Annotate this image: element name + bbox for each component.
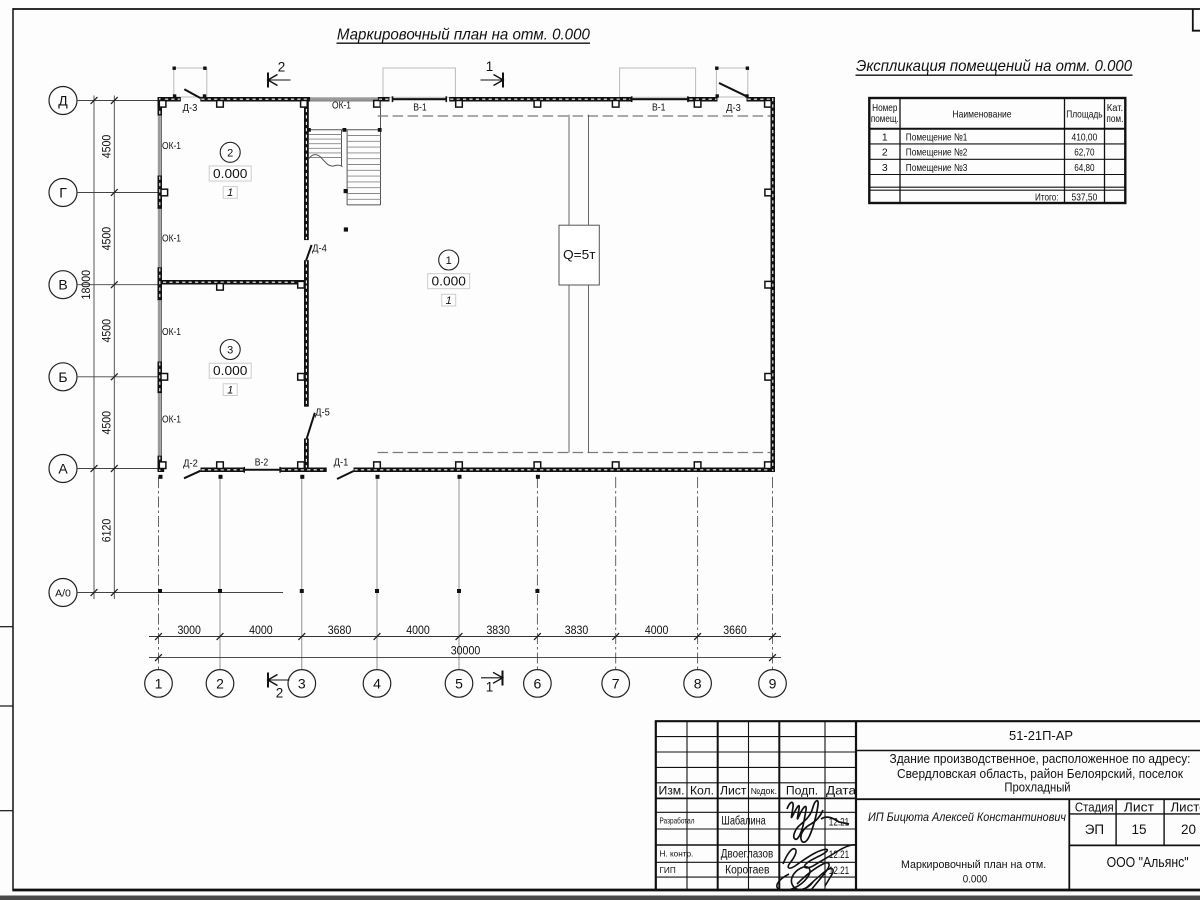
svg-text:Б: Б	[58, 369, 67, 385]
svg-text:2: 2	[216, 675, 224, 691]
svg-text:4000: 4000	[249, 623, 273, 637]
svg-text:Шабалина: Шабалина	[721, 816, 766, 828]
svg-text:3: 3	[882, 163, 888, 174]
svg-text:3: 3	[227, 345, 233, 357]
svg-text:Стадия: Стадия	[1075, 800, 1114, 815]
svg-text:6: 6	[534, 675, 542, 691]
svg-text:1: 1	[227, 384, 233, 396]
svg-text:ООО "Альянс": ООО "Альянс"	[1107, 854, 1189, 871]
svg-text:Наименование: Наименование	[952, 109, 1011, 120]
svg-text:3830: 3830	[565, 623, 589, 637]
svg-text:0.000: 0.000	[213, 167, 247, 181]
svg-text:0.000: 0.000	[432, 275, 466, 289]
svg-text:Д-1: Д-1	[334, 458, 349, 469]
svg-text:Д-5: Д-5	[315, 408, 330, 419]
svg-text:ОК-1: ОК-1	[162, 327, 181, 338]
svg-text:Помещение №1: Помещение №1	[906, 132, 968, 143]
svg-text:1: 1	[446, 295, 452, 307]
svg-text:Лист: Лист	[720, 784, 747, 798]
svg-text:В-1: В-1	[413, 103, 427, 114]
svg-text:51-21П-АР: 51-21П-АР	[1009, 728, 1073, 743]
svg-text:7: 7	[612, 675, 620, 691]
svg-text:А: А	[58, 461, 68, 477]
svg-text:20: 20	[1181, 822, 1196, 837]
svg-text:Д: Д	[58, 93, 68, 109]
svg-text:Прохладный: Прохладный	[1004, 780, 1070, 795]
svg-text:ГИП: ГИП	[660, 866, 676, 875]
svg-text:№док.: №док.	[751, 786, 777, 796]
svg-text:1: 1	[155, 675, 163, 691]
svg-text:1: 1	[227, 187, 233, 199]
svg-text:Д-3: Д-3	[726, 103, 741, 114]
svg-text:ЭП: ЭП	[1085, 822, 1104, 837]
svg-text:2: 2	[227, 147, 233, 159]
svg-text:64,80: 64,80	[1074, 163, 1095, 174]
svg-text:Д-3: Д-3	[183, 103, 198, 114]
svg-text:4500: 4500	[100, 135, 114, 159]
svg-text:0.000: 0.000	[213, 364, 247, 378]
svg-text:9: 9	[769, 675, 777, 691]
svg-text:4500: 4500	[100, 319, 114, 343]
svg-text:ИП Бицюта Алексей Константинов: ИП Бицюта Алексей Константинович	[868, 810, 1066, 824]
svg-text:Помещение №3: Помещение №3	[906, 163, 968, 174]
svg-text:Коротаев: Коротаев	[725, 865, 769, 877]
svg-text:Площадь: Площадь	[1066, 109, 1102, 120]
svg-text:3: 3	[298, 675, 306, 691]
svg-text:62,70: 62,70	[1074, 148, 1095, 159]
svg-text:Разработал: Разработал	[660, 817, 695, 826]
svg-text:ОК-1: ОК-1	[162, 414, 181, 425]
svg-text:Маркировочный план на отм. 0.0: Маркировочный план на отм. 0.000	[337, 26, 590, 43]
svg-text:1: 1	[446, 255, 452, 267]
svg-text:8: 8	[694, 675, 702, 691]
svg-text:4: 4	[373, 675, 381, 691]
svg-text:Маркировочный план на отм.: Маркировочный план на отм.	[901, 859, 1046, 871]
svg-text:Д-4: Д-4	[312, 244, 327, 255]
svg-text:А/0: А/0	[55, 587, 71, 599]
svg-text:2: 2	[278, 60, 286, 75]
svg-text:2: 2	[276, 686, 284, 701]
svg-text:Подп.: Подп.	[786, 784, 818, 798]
svg-text:Листов: Листов	[1171, 800, 1200, 815]
svg-text:3680: 3680	[328, 623, 352, 637]
svg-text:Помещение №2: Помещение №2	[906, 148, 968, 159]
svg-text:Г: Г	[59, 185, 67, 201]
svg-text:6120: 6120	[100, 519, 114, 543]
svg-text:Номер: Номер	[872, 103, 897, 114]
svg-text:3000: 3000	[177, 623, 201, 637]
svg-text:пом.: пом.	[1106, 114, 1123, 125]
svg-text:15: 15	[1131, 822, 1146, 837]
svg-text:410,00: 410,00	[1072, 132, 1098, 143]
svg-text:ОК-1: ОК-1	[162, 234, 181, 245]
svg-text:0.000: 0.000	[963, 873, 988, 885]
svg-text:1: 1	[486, 680, 494, 695]
svg-text:В-2: В-2	[255, 458, 269, 469]
svg-text:537,50: 537,50	[1072, 193, 1098, 204]
svg-text:Q=5т: Q=5т	[563, 247, 596, 262]
svg-text:Экспликация помещений на отм.: Экспликация помещений на отм. 0.000	[856, 58, 1132, 75]
svg-text:Двоеглазов: Двоеглазов	[721, 848, 773, 860]
svg-text:18000: 18000	[79, 270, 93, 300]
svg-text:Итого:: Итого:	[1035, 193, 1059, 204]
svg-text:ОК-1: ОК-1	[332, 101, 351, 112]
svg-text:3660: 3660	[723, 623, 747, 637]
svg-text:Н. контр.: Н. контр.	[660, 850, 694, 859]
svg-text:4500: 4500	[100, 411, 114, 435]
svg-text:В: В	[58, 277, 67, 293]
svg-text:4000: 4000	[406, 623, 430, 637]
svg-text:Изм.: Изм.	[658, 784, 684, 798]
svg-text:Д-2: Д-2	[183, 459, 198, 470]
svg-text:1: 1	[882, 132, 888, 143]
svg-text:2: 2	[882, 148, 888, 159]
svg-text:помещ.: помещ.	[871, 114, 899, 125]
svg-text:Дата: Дата	[826, 784, 856, 798]
svg-text:Кат.: Кат.	[1107, 103, 1123, 114]
svg-text:Здание производственное, распо: Здание производственное, расположенное п…	[890, 751, 1191, 766]
svg-text:Лист: Лист	[1124, 800, 1154, 815]
svg-text:5: 5	[455, 675, 463, 691]
svg-text:4000: 4000	[645, 623, 669, 637]
svg-text:ОК-1: ОК-1	[162, 141, 181, 152]
svg-text:1: 1	[486, 59, 494, 74]
svg-text:4500: 4500	[100, 227, 114, 251]
svg-text:30000: 30000	[451, 644, 481, 658]
svg-text:Кол.: Кол.	[690, 784, 714, 798]
svg-text:В-1: В-1	[652, 103, 666, 114]
svg-text:3830: 3830	[486, 623, 510, 637]
